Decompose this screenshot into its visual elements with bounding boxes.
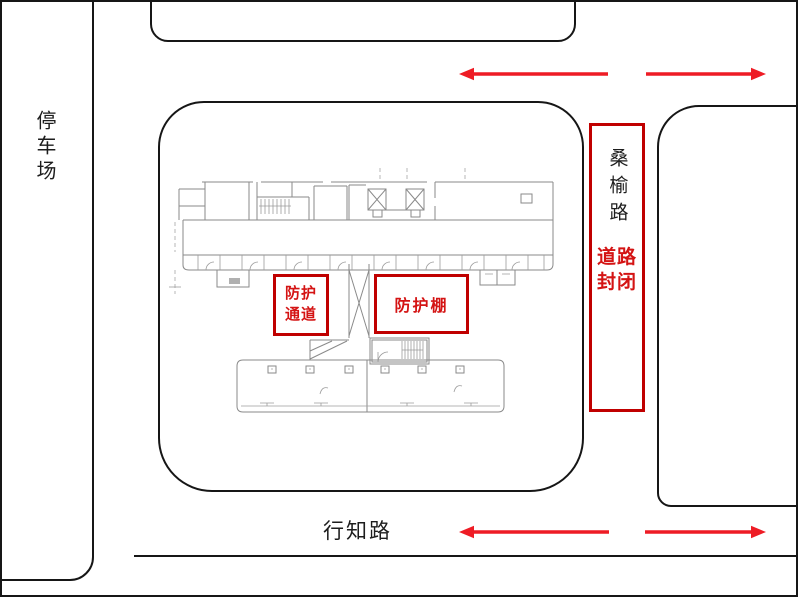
sangyu-road-label: 桑榆路 bbox=[604, 148, 631, 229]
arrow-right-top-icon bbox=[646, 68, 766, 80]
parking-lot-label: 停车场 bbox=[30, 110, 59, 185]
parking-lot-block bbox=[0, 0, 94, 581]
arrow-left-bottom-icon bbox=[459, 526, 609, 538]
road-closure-zone: 桑榆路 道路 封闭 bbox=[589, 123, 645, 412]
site-plan: 停车场 桑榆路 道路 封闭 防护 通道 防护棚 行知路 bbox=[0, 0, 798, 597]
arrow-left-top-icon bbox=[459, 68, 608, 80]
north-block bbox=[150, 0, 576, 42]
south-road-edge bbox=[134, 555, 798, 557]
protective-passage-box: 防护 通道 bbox=[273, 274, 329, 336]
east-block bbox=[657, 105, 798, 507]
construction-site-block bbox=[158, 101, 584, 492]
protective-shed-box: 防护棚 bbox=[374, 274, 469, 334]
xingzhi-road-label: 行知路 bbox=[323, 515, 392, 545]
arrow-right-bottom-icon bbox=[645, 526, 766, 538]
road-closed-label: 道路 封闭 bbox=[597, 245, 637, 295]
